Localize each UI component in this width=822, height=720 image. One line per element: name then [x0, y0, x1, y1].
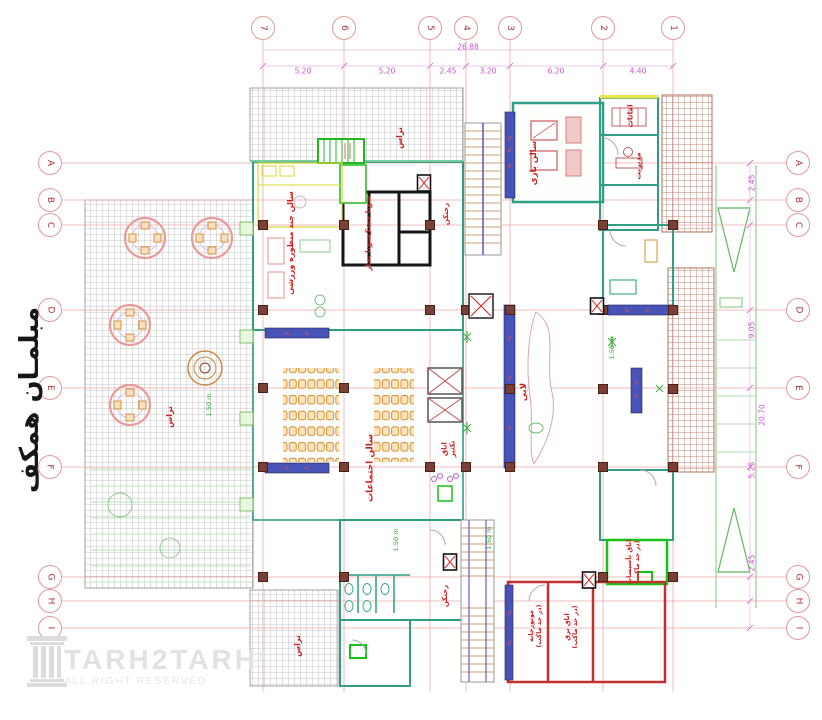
grid-bubble-col-3-label: 3: [505, 25, 515, 31]
grid-bubble-row-A-left-label: A: [45, 160, 55, 166]
dim-top-3: 3.20: [480, 67, 497, 76]
grid-bubble-row-H-right-label: H: [793, 598, 803, 605]
dim-top-5: 4.40: [630, 67, 647, 76]
grid-bubble-row-G-right-label: G: [793, 574, 803, 581]
dim-top-4: 6.20: [548, 67, 565, 76]
room-label: رختکن: [442, 203, 450, 225]
watermark-brand: TARH2TARH®: [64, 646, 268, 674]
grid-bubble-row-E-right-label: E: [793, 385, 803, 391]
column-logo-icon: [26, 632, 68, 688]
room-label: سالن بازی: [529, 141, 539, 185]
grid-bubble-col-1: 1: [661, 16, 685, 40]
grid-bubble-row-G-left: G: [38, 565, 62, 589]
grid-bubble-col-6: 6: [332, 16, 356, 40]
grid-bubble-row-B-left-label: B: [45, 197, 55, 203]
dim-right-1: 9.05: [748, 322, 757, 339]
area-annotation: 1.50 m: [608, 337, 616, 360]
grid-bubble-col-5-label: 5: [425, 25, 435, 31]
grid-bubble-col-4-label: 4: [461, 25, 471, 31]
dim-right-4: 2.45: [748, 555, 757, 572]
grid-bubble-row-F-right-label: F: [793, 464, 803, 469]
room-label: اتاق تکثیر: [441, 441, 458, 458]
area-annotation: 1.50 m: [205, 394, 213, 417]
grid-bubble-col-7-label: 7: [258, 25, 268, 31]
grid-bubble-row-H-right: H: [786, 589, 810, 613]
grid-bubble-col-1-label: 1: [668, 25, 678, 31]
grid-bubble-col-3: 3: [498, 16, 522, 40]
grid-bubble-col-7: 7: [251, 16, 275, 40]
grid-bubble-row-I-left-label: I: [45, 627, 55, 630]
grid-bubble-col-6-label: 6: [339, 25, 349, 31]
room-label: رختکن: [441, 585, 449, 607]
grid-bubble-row-E-left-label: E: [45, 385, 55, 391]
room-label: تراس: [293, 635, 303, 657]
room-label: موتورخانه (در حد ماکت): [528, 604, 544, 647]
grid-bubble-row-B-left: B: [38, 188, 62, 212]
grid-bubble-row-B-right-label: B: [793, 197, 803, 203]
dim-top-1: 5.20: [379, 67, 396, 76]
grid-bubble-row-A-right-label: A: [793, 160, 803, 166]
grid-bubble-row-H-left: H: [38, 589, 62, 613]
grid-bubble-row-F-left-label: F: [45, 464, 55, 469]
dim-top-0: 5.20: [295, 67, 312, 76]
grid-bubble-row-C-right-label: C: [793, 222, 803, 228]
grid-bubble-row-I-right: I: [786, 616, 810, 640]
dim-right-3: 5.25: [748, 462, 757, 479]
plan-title: مبلمـان همکف: [15, 307, 45, 493]
room-label: مدیریت: [634, 152, 643, 179]
room-label: سالن اجتماعات: [366, 434, 377, 502]
grid-bubble-row-C-left-label: C: [45, 222, 55, 228]
registered-mark: ®: [258, 651, 268, 662]
grid-bubble-col-2: 2: [591, 16, 615, 40]
room-label: سونا بخار: [364, 235, 373, 271]
grid-bubble-row-C-right: C: [786, 213, 810, 237]
room-label: تراس: [395, 127, 405, 149]
grid-bubble-row-D-left-label: D: [45, 307, 55, 314]
room-label: اتاق برق (در حد ماکت): [564, 605, 580, 648]
room-label: تراس: [165, 406, 175, 428]
grid-bubble-col-4: 4: [454, 16, 478, 40]
grid-bubble-col-5: 5: [418, 16, 442, 40]
dim-right-0: 2.45: [748, 175, 757, 192]
room-label: سونا خشک: [364, 195, 373, 236]
grid-bubble-row-G-right: G: [786, 565, 810, 589]
grid-bubble-row-C-left: C: [38, 213, 62, 237]
grid-bubble-row-F-right: F: [786, 455, 810, 479]
grid-bubble-row-E-right: E: [786, 376, 810, 400]
grid-bubble-row-A-right: A: [786, 151, 810, 175]
dim-top-2: 2.45: [440, 67, 457, 76]
grid-bubble-col-2-label: 2: [598, 25, 608, 31]
area-annotation: 1.50 m: [392, 529, 400, 552]
watermark-subtitle: ALL RIGHT RESERVED: [64, 675, 268, 687]
floor-plan-canvas: 7654321AABBCCDDEEFFGGHHII26.885.205.202.…: [0, 0, 822, 720]
grid-bubble-row-H-left-label: H: [45, 598, 55, 605]
grid-bubble-row-A-left: A: [38, 151, 62, 175]
area-annotation: 1.50 m: [485, 527, 493, 550]
watermark: TARH2TARH® ALL RIGHT RESERVED: [26, 632, 268, 688]
room-label: امانات: [626, 104, 635, 127]
grid-bubble-row-D-right-label: D: [793, 307, 803, 314]
grid-bubble-row-B-right: B: [786, 188, 810, 212]
dim-total-width: 26.88: [457, 43, 478, 52]
dim-right-2: 20.70: [758, 404, 767, 425]
label-overlay: 7654321AABBCCDDEEFFGGHHII26.885.205.202.…: [0, 0, 822, 720]
room-label: لابی: [519, 383, 529, 401]
grid-bubble-row-I-right-label: I: [793, 627, 803, 630]
grid-bubble-row-G-left-label: G: [45, 574, 55, 581]
room-label: اتاق تأسیسات (در حد ماکت): [626, 540, 642, 585]
room-label: سالن چند منظوره ورزشی: [286, 191, 296, 295]
grid-bubble-row-D-right: D: [786, 298, 810, 322]
